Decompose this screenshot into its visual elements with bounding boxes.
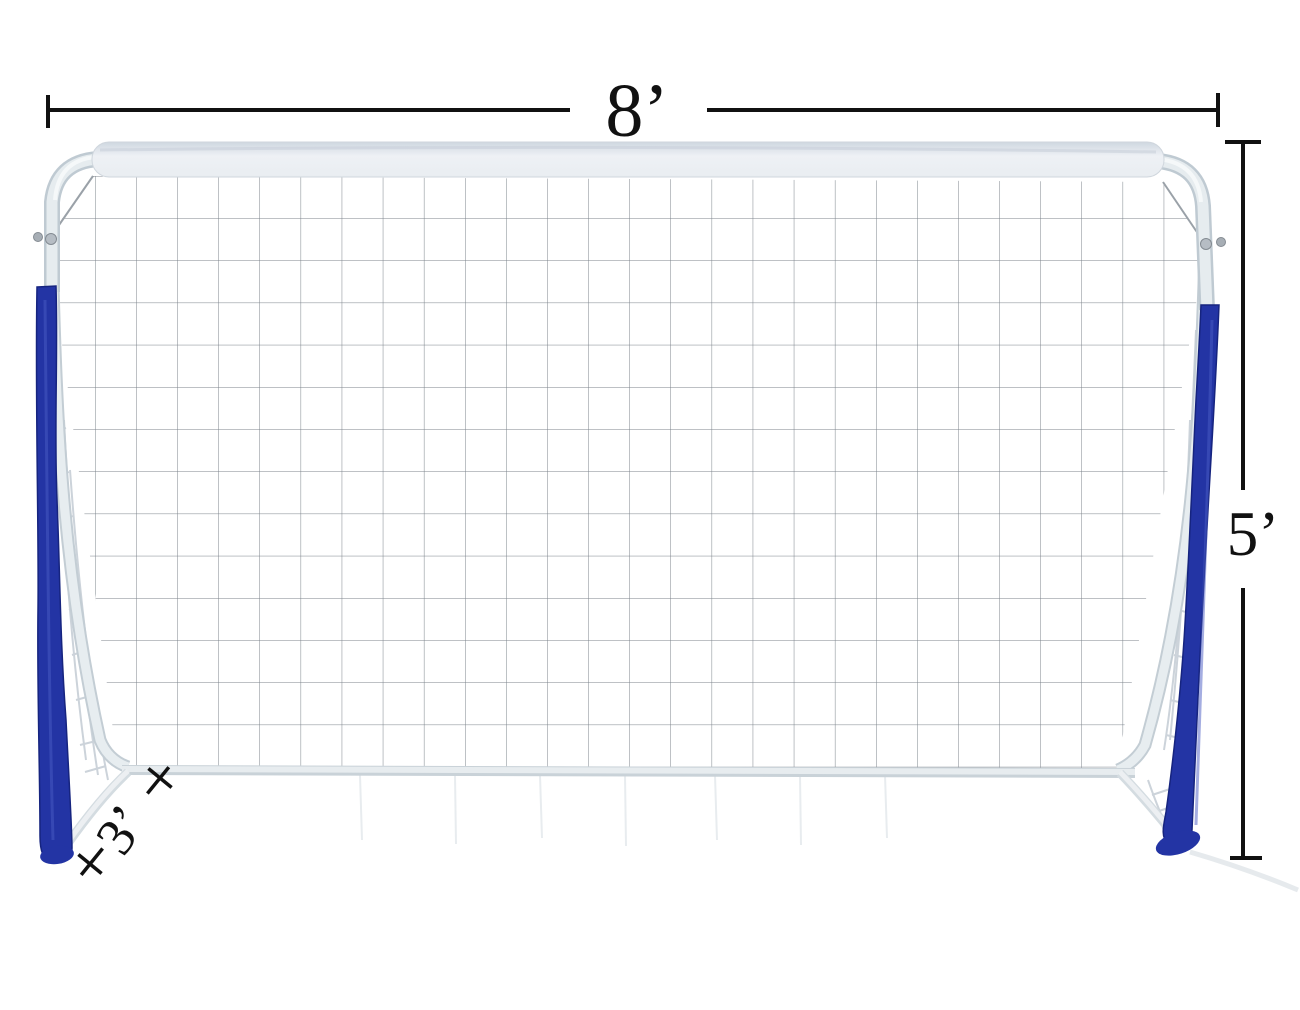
height-dimension-label: 5’ xyxy=(1227,499,1279,569)
product-dimension-diagram: 8’ 5’ 3’ xyxy=(0,0,1300,1010)
left-joint-bolt-icon xyxy=(46,234,57,245)
right-joint-bolt-icon xyxy=(1201,239,1212,250)
width-dimension-label: 8’ xyxy=(605,69,668,153)
bottom-ground-bar xyxy=(122,769,1135,773)
left-outer-bolt-icon xyxy=(34,233,43,242)
back-net-grid xyxy=(48,176,1206,770)
soccer-goal-diagram: 8’ 5’ 3’ xyxy=(0,0,1300,1010)
right-outer-bolt-icon xyxy=(1217,238,1226,247)
